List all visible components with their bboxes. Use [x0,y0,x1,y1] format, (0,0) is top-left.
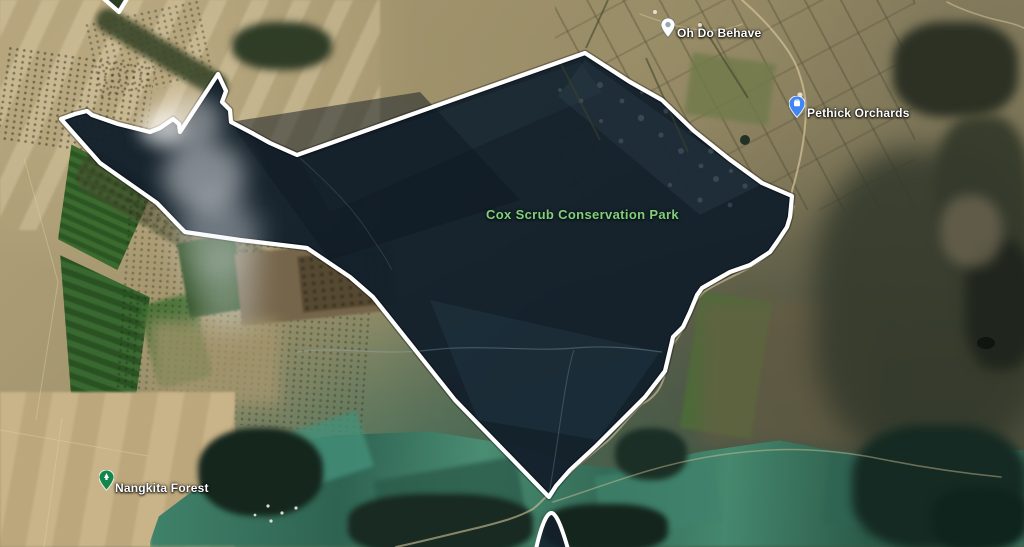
map-canvas[interactable]: Oh Do Behave Pethick Orchards Nangkita F… [0,0,1024,547]
shopping-pin-icon[interactable] [789,96,805,118]
boundary-fragment-bottom [536,513,568,547]
park-area-label[interactable]: Cox Scrub Conservation Park [486,207,679,222]
map-vector-layer [0,0,1024,547]
park-pin-icon[interactable] [99,470,114,491]
place-label[interactable]: Nangkita Forest [115,481,209,495]
place-label[interactable]: Pethick Orchards [807,106,910,120]
smoke-puff-6 [198,292,260,334]
place-label[interactable]: Oh Do Behave [677,26,761,40]
poi-pin-icon[interactable] [661,18,675,38]
smoke-puff-2 [150,95,222,147]
